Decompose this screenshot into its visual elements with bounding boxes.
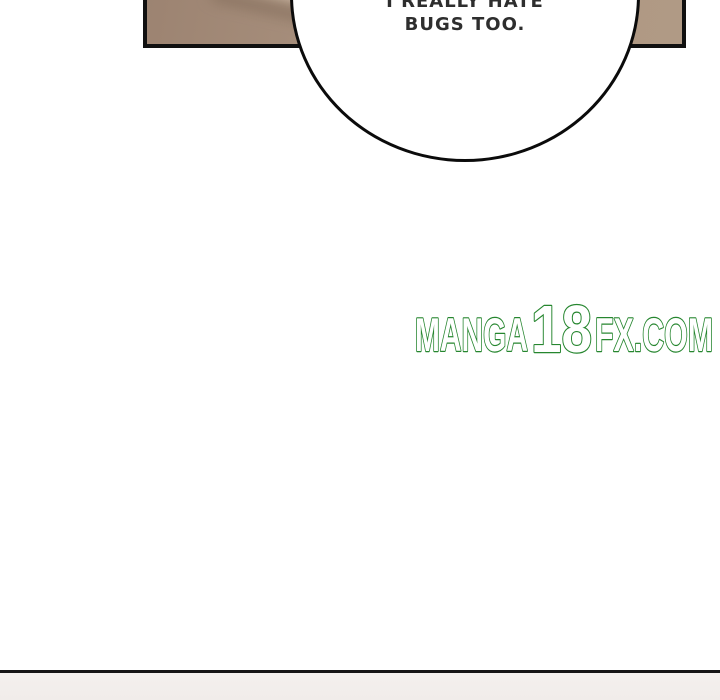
speech-line-1: I REALLY HATE xyxy=(290,0,640,13)
next-panel-top xyxy=(0,673,720,700)
watermark-text-manga: MANGA xyxy=(415,308,528,361)
speech-bubble-text: I REALLY HATE BUGS TOO. xyxy=(290,0,640,36)
watermark-text-fxcom: FX.COM xyxy=(595,308,713,361)
speech-line-2: BUGS TOO. xyxy=(290,13,640,36)
site-watermark: MANGA 18 FX.COM xyxy=(410,297,720,361)
watermark-text-18: 18 xyxy=(531,297,592,361)
